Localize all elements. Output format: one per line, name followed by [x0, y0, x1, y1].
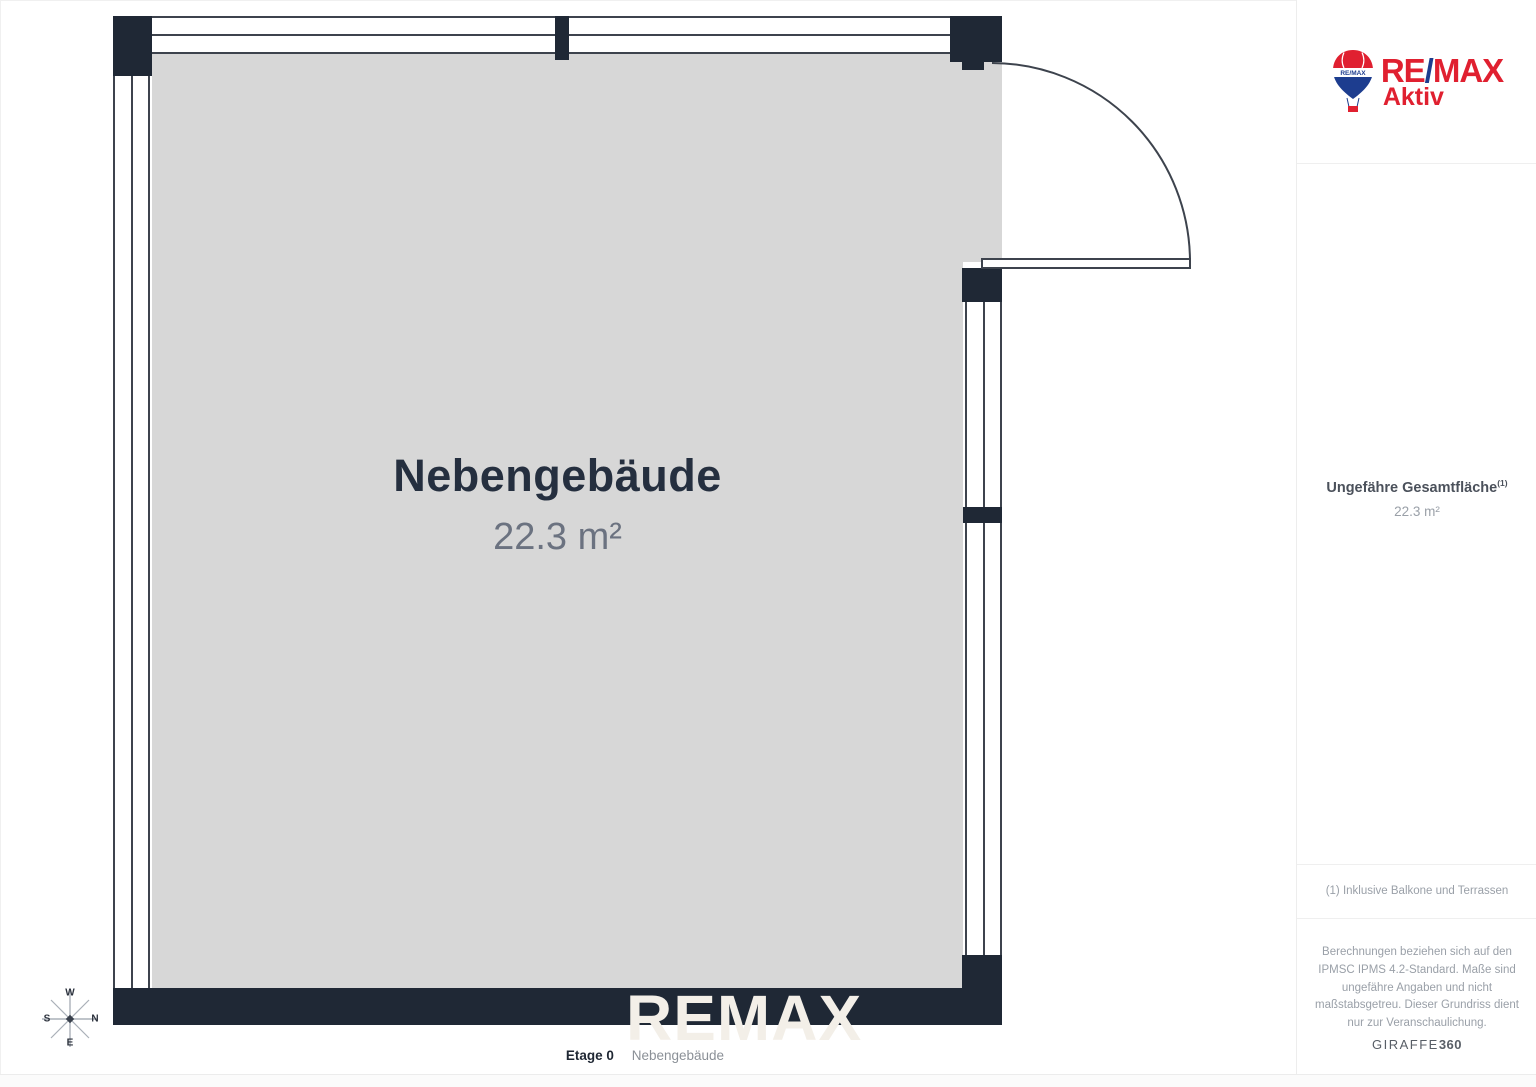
info-panel: RE/MAX RE/MAX Aktiv Ungefähre Gesamtfläc…	[1296, 0, 1536, 1087]
window-glazing-line	[131, 76, 133, 988]
compass-west-label: W	[65, 988, 74, 999]
total-area-label: Ungefähre Gesamtfläche(1)	[1297, 478, 1536, 496]
floor-caption: Etage 0 Nebengebäude	[0, 1048, 1290, 1063]
window-top-right	[569, 16, 950, 54]
vendor-name: GIRAFFE	[1372, 1037, 1439, 1052]
remax-logo-text: RE/MAX Aktiv	[1381, 54, 1503, 110]
compass-north-label: N	[91, 1014, 98, 1025]
sidebar-divider	[1297, 163, 1536, 164]
disclaimer-section: Berechnungen beziehen sich auf den IPMSC…	[1297, 918, 1536, 1033]
compass-south-label: S	[44, 1014, 51, 1025]
total-area-footnote-ref: (1)	[1497, 478, 1507, 488]
wall-bottom	[113, 988, 1002, 1025]
window-top-left	[152, 16, 555, 54]
wall-mullion-right	[963, 507, 1002, 523]
window-right-upper	[965, 302, 1002, 507]
floor-plan-page: Nebengebäude 22.3 m² REMAX W S N E Etage…	[0, 0, 1536, 1087]
compass-east-label: E	[67, 1038, 74, 1049]
room-area: 22.3 m²	[152, 516, 963, 559]
window-glazing-line	[983, 523, 985, 955]
footnote-section: (1) Inklusive Balkone und Terrassen	[1297, 864, 1536, 918]
door-swing-arc	[992, 63, 1190, 262]
balloon-wordmark-text: RE/MAX	[1340, 70, 1366, 77]
remax-wordmark: RE/MAX	[1381, 54, 1503, 87]
vendor-suffix: 360	[1439, 1037, 1462, 1052]
remax-subbrand: Aktiv	[1381, 85, 1503, 110]
remax-logo: RE/MAX RE/MAX Aktiv	[1297, 0, 1536, 163]
door-icon	[950, 50, 1210, 280]
wall-corner-top-left	[113, 16, 152, 76]
wall-mullion-top	[555, 16, 569, 60]
total-area-value: 22.3 m²	[1297, 504, 1536, 519]
remax-watermark: REMAX	[626, 986, 862, 1050]
remax-balloon-icon: RE/MAX	[1331, 49, 1375, 115]
total-area-block: Ungefähre Gesamtfläche(1) 22.3 m²	[1297, 478, 1536, 519]
window-glazing-line	[983, 302, 985, 507]
window-left	[113, 76, 150, 988]
floor-room-label: Nebengebäude	[632, 1048, 724, 1063]
room-label: Nebengebäude 22.3 m²	[152, 450, 963, 559]
total-area-label-text: Ungefähre Gesamtfläche	[1326, 480, 1497, 496]
window-glazing-line	[569, 34, 950, 36]
door-leaf	[982, 259, 1190, 268]
vendor-logo: GIRAFFE360	[1297, 1036, 1536, 1054]
room-name: Nebengebäude	[152, 450, 963, 502]
page-bottom-border	[0, 1074, 1536, 1087]
window-glazing-line	[152, 34, 555, 36]
footnote-text: (1) Inklusive Balkone und Terrassen	[1326, 885, 1509, 897]
disclaimer-text: Berechnungen beziehen sich auf den IPMSC…	[1310, 944, 1524, 1033]
floor-level-label: Etage 0	[566, 1048, 614, 1063]
window-right-lower	[965, 523, 1002, 955]
